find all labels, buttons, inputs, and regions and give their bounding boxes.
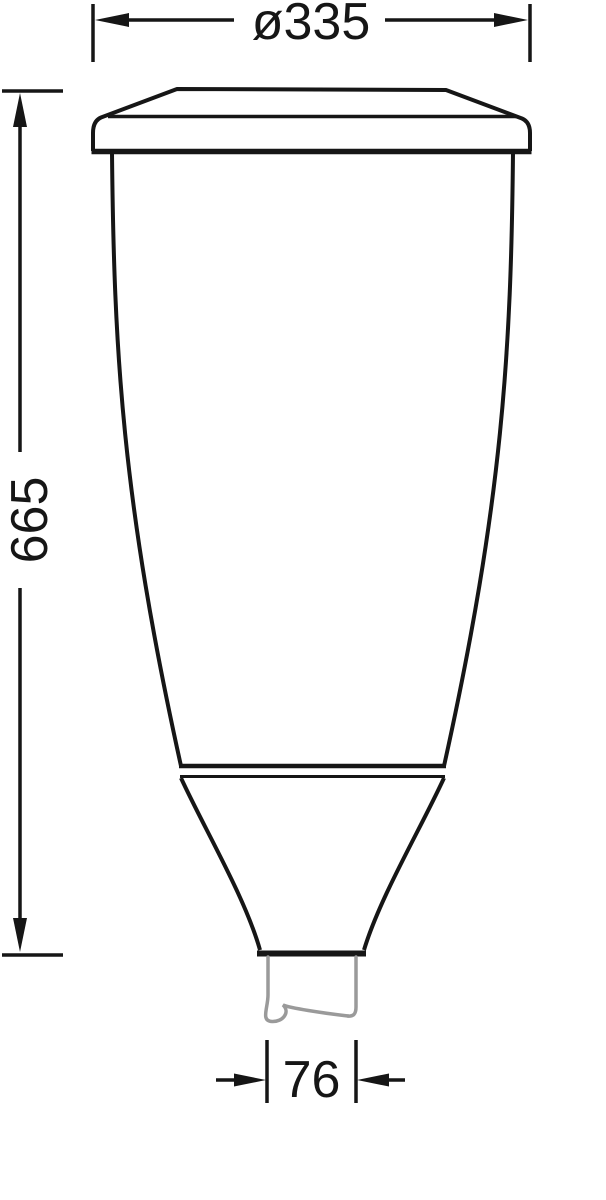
funnel-left-side — [181, 778, 260, 950]
spigot-dimension-label: 76 — [283, 1051, 341, 1109]
body-left-side — [112, 153, 181, 766]
cap-silhouette — [93, 89, 530, 151]
arrow-inward-right-icon — [234, 1074, 266, 1087]
arrow-down-icon — [13, 918, 27, 952]
arrow-up-icon — [13, 93, 27, 127]
dimension-lines — [2, 4, 530, 1103]
dimension-labels: ø335 665 76 — [1, 0, 370, 1109]
funnel-right-side — [364, 778, 444, 950]
body-right-side — [444, 153, 513, 766]
arrow-right-icon — [494, 13, 528, 27]
technical-drawing-canvas: ø335 665 76 — [0, 0, 606, 1200]
arrow-inward-left-icon — [357, 1074, 389, 1087]
diameter-dimension-label: ø335 — [252, 0, 371, 51]
arrow-left-icon — [95, 13, 129, 27]
pole-spigot-break — [266, 957, 356, 1022]
pole-right-edge — [348, 957, 356, 1016]
height-dimension-label: 665 — [1, 477, 59, 564]
luminaire-dimension-drawing: ø335 665 76 — [0, 0, 606, 1200]
pole-left-edge-break-line — [266, 957, 348, 1022]
luminaire-outline — [92, 89, 532, 954]
dimension-arrowheads — [13, 13, 528, 1087]
